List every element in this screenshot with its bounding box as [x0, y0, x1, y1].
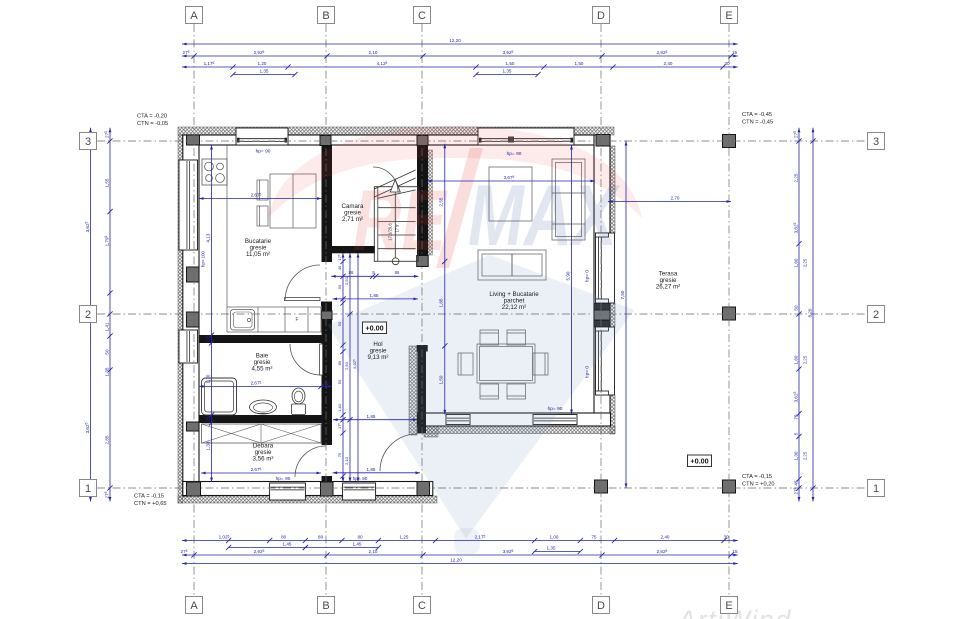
svg-text:1,70: 1,70 — [205, 374, 210, 383]
svg-text:75: 75 — [793, 414, 798, 420]
svg-text:hp= 0: hp= 0 — [585, 366, 591, 378]
svg-text:1,85: 1,85 — [367, 414, 376, 419]
svg-text:2,50: 2,50 — [344, 361, 349, 370]
svg-text:E: E — [725, 10, 732, 22]
svg-text:1,55: 1,55 — [104, 178, 109, 187]
svg-text:2,10: 2,10 — [369, 549, 378, 554]
svg-text:D: D — [597, 10, 605, 22]
svg-text:50: 50 — [337, 379, 342, 384]
svg-text:86: 86 — [337, 360, 342, 365]
svg-text:2,25: 2,25 — [803, 355, 808, 364]
svg-text:hp= 90: hp= 90 — [507, 151, 522, 157]
svg-text:2,55: 2,55 — [439, 197, 444, 206]
svg-text:RE: RE — [353, 173, 448, 269]
svg-text:1,35: 1,35 — [547, 546, 556, 551]
svg-text:1,40: 1,40 — [337, 403, 342, 412]
svg-text:1,25: 1,25 — [400, 535, 409, 540]
svg-text:2,85: 2,85 — [104, 435, 109, 444]
svg-text:75: 75 — [591, 535, 597, 540]
svg-text:+0.00: +0.00 — [690, 457, 708, 466]
svg-text:1,35: 1,35 — [104, 367, 109, 376]
svg-text:hp= 0: hp= 0 — [585, 270, 591, 282]
svg-text:15: 15 — [732, 549, 738, 554]
svg-text:80: 80 — [357, 535, 363, 540]
svg-text:3,56 m²: 3,56 m² — [253, 456, 274, 463]
svg-text:1,85: 1,85 — [367, 467, 376, 472]
svg-text:CTA = -0,15: CTA = -0,15 — [742, 474, 772, 480]
svg-text:2,10: 2,10 — [344, 456, 349, 465]
svg-text:4,55 m²: 4,55 m² — [252, 366, 273, 373]
svg-text:hp= 100: hp= 100 — [201, 250, 206, 267]
svg-text:7,50: 7,50 — [620, 290, 625, 299]
svg-text:22,12 m²: 22,12 m² — [502, 304, 526, 311]
svg-text:1,45: 1,45 — [283, 542, 292, 547]
svg-text:25: 25 — [324, 381, 330, 386]
svg-text:12,20: 12,20 — [450, 558, 462, 563]
svg-text:hp= 90: hp= 90 — [353, 476, 368, 482]
svg-text:2,71 m²: 2,71 m² — [342, 216, 363, 223]
svg-text:50: 50 — [793, 305, 798, 311]
svg-text:2,40: 2,40 — [664, 61, 673, 66]
svg-text:50: 50 — [104, 349, 109, 355]
svg-text:4,13: 4,13 — [205, 233, 210, 242]
svg-text:1,85: 1,85 — [439, 298, 444, 307]
svg-text:9,13 m²: 9,13 m² — [368, 354, 389, 361]
svg-text:1,85: 1,85 — [370, 293, 379, 298]
svg-text:2,70: 2,70 — [671, 196, 680, 201]
svg-text:F: F — [295, 317, 298, 323]
svg-text:5: 5 — [793, 432, 798, 435]
svg-text:CTA = -0,45: CTA = -0,45 — [742, 112, 772, 118]
svg-text:hp= 90: hp= 90 — [548, 406, 563, 412]
svg-text:80: 80 — [281, 535, 287, 540]
svg-text:86: 86 — [395, 270, 400, 275]
svg-text:CTN = +0,20: CTN = +0,20 — [742, 482, 775, 488]
svg-text:E: E — [725, 600, 732, 612]
svg-text:MAX: MAX — [468, 168, 621, 264]
svg-text:30: 30 — [724, 61, 730, 66]
svg-text:2: 2 — [873, 309, 879, 321]
svg-text:2,25: 2,25 — [803, 258, 808, 267]
svg-text:1,30: 1,30 — [793, 451, 798, 460]
svg-text:1: 1 — [85, 483, 91, 495]
svg-text:B: B — [322, 600, 329, 612]
svg-text:3: 3 — [85, 136, 91, 148]
svg-text:80: 80 — [318, 535, 324, 540]
svg-text:1,41: 1,41 — [104, 322, 109, 331]
svg-text:75: 75 — [337, 452, 342, 457]
svg-text:1,50: 1,50 — [506, 61, 515, 66]
svg-text:86: 86 — [349, 270, 354, 275]
svg-text:CTA = -0,20: CTA = -0,20 — [137, 114, 167, 120]
svg-text:C: C — [418, 600, 426, 612]
svg-text:1,60: 1,60 — [793, 258, 798, 267]
svg-text:8,20: 8,20 — [807, 308, 812, 317]
svg-text:26,27 m²: 26,27 m² — [656, 284, 680, 291]
svg-text:CTN = -0,05: CTN = -0,05 — [137, 121, 168, 127]
svg-text:C: C — [418, 10, 426, 22]
svg-text:3: 3 — [873, 136, 879, 148]
svg-text:CTA = -0,15: CTA = -0,15 — [134, 494, 164, 500]
svg-text:D: D — [597, 600, 605, 612]
svg-text:45: 45 — [793, 480, 798, 486]
svg-text:+0.00: +0.00 — [365, 324, 383, 333]
svg-text:1: 1 — [873, 483, 879, 495]
svg-text:25: 25 — [205, 416, 210, 422]
svg-text:12,20: 12,20 — [449, 38, 461, 43]
svg-text:1,50: 1,50 — [439, 375, 444, 384]
svg-text:1,50: 1,50 — [575, 61, 584, 66]
svg-text:2,50: 2,50 — [344, 276, 349, 285]
svg-text:40: 40 — [337, 265, 342, 270]
svg-text:CTN = -0,45: CTN = -0,45 — [742, 120, 773, 126]
svg-text:1,35: 1,35 — [503, 69, 512, 74]
svg-text:1,20: 1,20 — [258, 61, 267, 66]
svg-text:hp= 90: hp= 90 — [276, 476, 291, 482]
svg-text:11,05 m²: 11,05 m² — [246, 251, 270, 258]
svg-text:2,10: 2,10 — [369, 50, 378, 55]
svg-text:1,45: 1,45 — [353, 542, 362, 547]
svg-text:1,00: 1,00 — [550, 535, 559, 540]
svg-text:CTN = +0,65: CTN = +0,65 — [134, 501, 167, 507]
svg-text:50: 50 — [337, 321, 342, 326]
svg-text:A: A — [190, 600, 198, 612]
svg-text:2,25: 2,25 — [803, 451, 808, 460]
svg-text:A: A — [190, 10, 198, 22]
svg-text:15: 15 — [732, 50, 738, 55]
svg-text:1,60: 1,60 — [793, 355, 798, 364]
svg-text:50: 50 — [337, 284, 342, 289]
svg-text:2: 2 — [85, 309, 91, 321]
svg-text:2,40: 2,40 — [661, 535, 670, 540]
svg-text:2,25: 2,25 — [793, 173, 798, 182]
svg-text:1,33: 1,33 — [205, 441, 210, 450]
svg-text:B: B — [322, 10, 329, 22]
svg-text:5,90: 5,90 — [565, 271, 570, 280]
svg-text:1,35: 1,35 — [260, 69, 269, 74]
svg-text:30: 30 — [723, 535, 729, 540]
svg-text:hp= 90: hp= 90 — [256, 149, 271, 155]
